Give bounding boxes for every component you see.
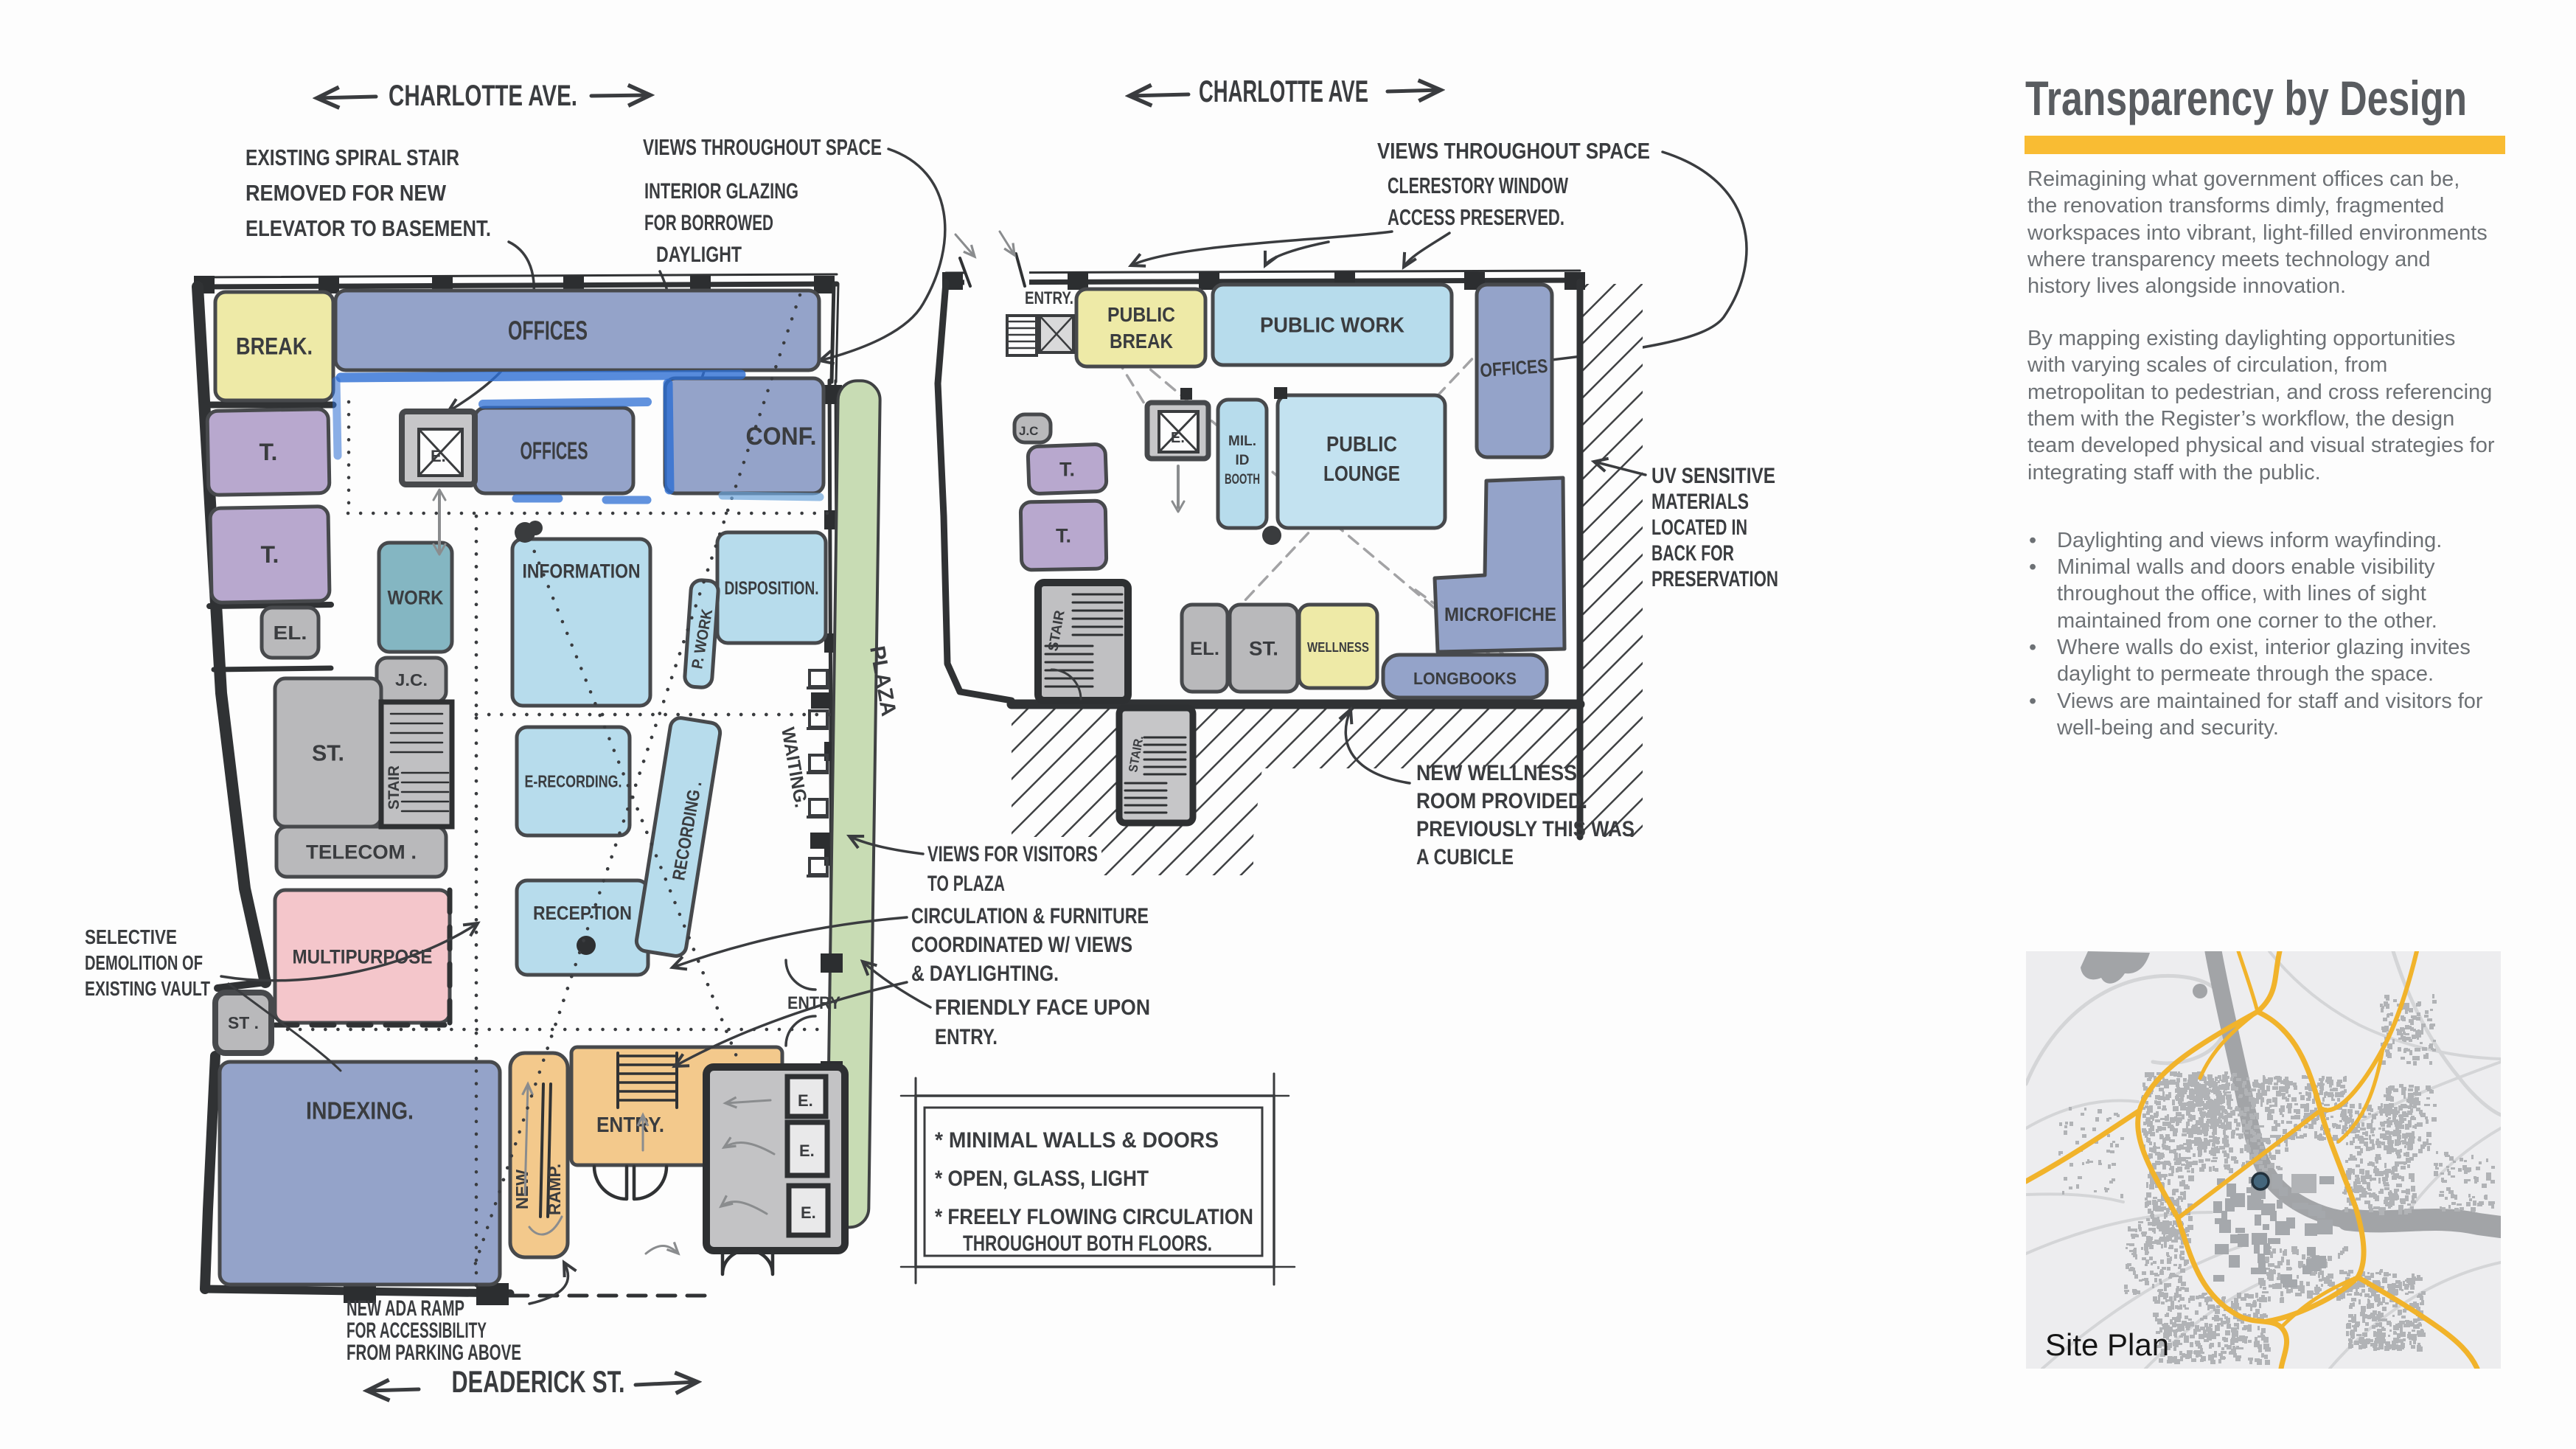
svg-text:Reimagining what government of: Reimagining what government offices can … xyxy=(2027,167,2460,191)
svg-text:history lives alongside innova: history lives alongside innovation. xyxy=(2027,274,2346,298)
svg-text:•: • xyxy=(2029,636,2036,659)
svg-text:E.: E. xyxy=(798,1091,813,1110)
svg-text:NEW ADA RAMP: NEW ADA RAMP xyxy=(347,1296,464,1321)
svg-text:EXISTING SPIRAL STAIR: EXISTING SPIRAL STAIR xyxy=(246,145,459,170)
svg-text:EL.: EL. xyxy=(274,622,307,644)
svg-text:NEW: NEW xyxy=(512,1170,532,1209)
svg-text:CIRCULATION & FURNITURE: CIRCULATION & FURNITURE xyxy=(911,904,1149,928)
svg-text:Daylighting and views inform w: Daylighting and views inform wayfinding. xyxy=(2057,529,2442,552)
svg-text:FRIENDLY FACE UPON: FRIENDLY FACE UPON xyxy=(935,995,1150,1020)
svg-text:Minimal walls and doors enable: Minimal walls and doors enable visibilit… xyxy=(2057,555,2435,579)
svg-text:T.: T. xyxy=(1056,524,1071,546)
svg-text:T.: T. xyxy=(1059,458,1075,480)
svg-text:OFFICES: OFFICES xyxy=(521,437,588,465)
svg-text:OFFICES: OFFICES xyxy=(1479,355,1548,381)
svg-text:VIEWS THROUGHOUT SPACE: VIEWS THROUGHOUT SPACE xyxy=(643,134,882,160)
svg-text:ROOM PROVIDED.: ROOM PROVIDED. xyxy=(1416,789,1587,813)
svg-text:E.: E. xyxy=(431,447,446,465)
svg-text:FOR BORROWED: FOR BORROWED xyxy=(644,211,773,235)
svg-text:PUBLIC: PUBLIC xyxy=(1326,433,1397,456)
svg-text:Site Plan: Site Plan xyxy=(2045,1327,2169,1362)
svg-text:LOUNGE: LOUNGE xyxy=(1323,462,1400,486)
svg-text:BOOTH: BOOTH xyxy=(1225,472,1260,487)
svg-text:E.: E. xyxy=(799,1142,815,1160)
svg-text:CHARLOTTE AVE: CHARLOTTE AVE xyxy=(1199,74,1368,108)
svg-text:BACK FOR: BACK FOR xyxy=(1651,541,1734,566)
svg-text:throughout the office, with li: throughout the office, with lines of sig… xyxy=(2057,582,2426,605)
svg-text:REMOVED FOR NEW: REMOVED FOR NEW xyxy=(246,180,447,206)
svg-text:maintained from one corner to: maintained from one corner to the other. xyxy=(2057,609,2437,633)
svg-text:LONGBOOKS: LONGBOOKS xyxy=(1413,669,1517,688)
svg-text:•: • xyxy=(2029,689,2036,713)
svg-text:BREAK: BREAK xyxy=(1110,330,1173,352)
svg-text:ID: ID xyxy=(1236,453,1250,468)
svg-text:* OPEN, GLASS, LIGHT: * OPEN, GLASS, LIGHT xyxy=(935,1167,1149,1191)
svg-text:J.C: J.C xyxy=(1019,424,1038,438)
svg-text:LOCATED IN: LOCATED IN xyxy=(1651,515,1747,540)
svg-text:CHARLOTTE AVE.: CHARLOTTE AVE. xyxy=(389,80,577,112)
svg-text:ACCESS PRESERVED.: ACCESS PRESERVED. xyxy=(1388,204,1564,230)
svg-text:•: • xyxy=(2029,529,2036,552)
svg-text:the renovation transforms diml: the renovation transforms dimly, fragmen… xyxy=(2027,194,2444,218)
svg-text:DISPOSITION.: DISPOSITION. xyxy=(725,578,819,599)
svg-text:RAMP.: RAMP. xyxy=(545,1164,564,1215)
svg-text:ELEVATOR TO BASEMENT.: ELEVATOR TO BASEMENT. xyxy=(246,215,491,241)
svg-text:A CUBICLE: A CUBICLE xyxy=(1416,845,1514,869)
svg-text:TO PLAZA: TO PLAZA xyxy=(927,872,1005,896)
svg-text:MICROFICHE: MICROFICHE xyxy=(1444,603,1556,625)
svg-text:E.: E. xyxy=(1171,430,1185,446)
svg-text:VIEWS FOR VISITORS: VIEWS FOR VISITORS xyxy=(927,842,1098,866)
svg-text:* FREELY FLOWING CIRCULATION: * FREELY FLOWING CIRCULATION xyxy=(935,1205,1253,1229)
svg-text:•: • xyxy=(2029,555,2036,579)
svg-text:SELECTIVE: SELECTIVE xyxy=(85,925,177,948)
svg-text:T.: T. xyxy=(261,541,279,568)
svg-text:NEW WELLNESS: NEW WELLNESS xyxy=(1416,761,1577,785)
svg-text:& DAYLIGHTING.: & DAYLIGHTING. xyxy=(911,962,1059,986)
svg-text:J.C.: J.C. xyxy=(395,670,428,689)
svg-text:ST .: ST . xyxy=(228,1013,259,1032)
svg-text:EXISTING VAULT: EXISTING VAULT xyxy=(85,977,210,1000)
svg-text:By mapping existing daylightin: By mapping existing daylighting opportun… xyxy=(2027,327,2455,350)
svg-text:INDEXING.: INDEXING. xyxy=(306,1097,414,1125)
svg-text:MATERIALS: MATERIALS xyxy=(1651,490,1749,514)
svg-text:RECEPTION: RECEPTION xyxy=(533,902,632,924)
svg-text:well-being and security.: well-being and security. xyxy=(2056,716,2279,740)
svg-text:STAIR: STAIR xyxy=(386,765,403,810)
svg-text:PRESERVATION: PRESERVATION xyxy=(1651,567,1778,591)
svg-text:* MINIMAL WALLS & DOORS: * MINIMAL WALLS & DOORS xyxy=(935,1128,1219,1153)
svg-text:E.: E. xyxy=(801,1203,816,1222)
svg-text:ST.: ST. xyxy=(1249,637,1278,659)
svg-text:ENTRY.: ENTRY. xyxy=(935,1025,998,1049)
svg-text:ENTRY: ENTRY xyxy=(787,993,840,1013)
svg-text:where transparency meets techn: where transparency meets technology and xyxy=(2027,248,2430,271)
svg-text:Where walls do exist, interior: Where walls do exist, interior glazing i… xyxy=(2057,636,2471,659)
svg-text:DEMOLITION OF: DEMOLITION OF xyxy=(85,951,203,974)
svg-text:FOR ACCESSIBILITY: FOR ACCESSIBILITY xyxy=(347,1318,487,1343)
svg-text:EL.: EL. xyxy=(1190,639,1219,659)
svg-text:with varying scales of circula: with varying scales of circulation, from xyxy=(2027,353,2387,377)
svg-text:OFFICES: OFFICES xyxy=(508,316,588,346)
svg-text:E-RECORDING.: E-RECORDING. xyxy=(525,772,622,791)
svg-text:CLERESTORY WINDOW: CLERESTORY WINDOW xyxy=(1388,173,1569,198)
svg-text:THROUGHOUT BOTH FLOORS.: THROUGHOUT BOTH FLOORS. xyxy=(963,1231,1212,1256)
svg-text:COORDINATED W/ VIEWS: COORDINATED W/ VIEWS xyxy=(911,933,1132,957)
svg-text:DAYLIGHT: DAYLIGHT xyxy=(656,243,742,267)
svg-text:team developed physical and vi: team developed physical and visual strat… xyxy=(2027,434,2495,457)
svg-text:INTERIOR GLAZING: INTERIOR GLAZING xyxy=(644,179,798,204)
svg-text:VIEWS THROUGHOUT SPACE: VIEWS THROUGHOUT SPACE xyxy=(1377,138,1650,164)
svg-text:TELECOM .: TELECOM . xyxy=(306,841,417,863)
svg-text:daylight to permeate through t: daylight to permeate through the space. xyxy=(2057,662,2434,686)
svg-text:integrating staff with the pub: integrating staff with the public. xyxy=(2027,461,2321,484)
svg-text:WELLNESS: WELLNESS xyxy=(1307,640,1369,655)
svg-text:DEADERICK ST.: DEADERICK ST. xyxy=(452,1364,625,1399)
svg-text:them with the Register’s workf: them with the Register’s workflow, the d… xyxy=(2027,407,2454,431)
svg-text:ENTRY.: ENTRY. xyxy=(596,1113,664,1137)
svg-text:WORK: WORK xyxy=(388,586,444,608)
svg-text:PUBLIC: PUBLIC xyxy=(1107,303,1175,326)
svg-text:BREAK.: BREAK. xyxy=(236,333,313,360)
svg-text:Views are maintained for staff: Views are maintained for staff and visit… xyxy=(2057,689,2483,713)
svg-text:UV SENSITIVE: UV SENSITIVE xyxy=(1651,464,1775,488)
svg-text:MIL.: MIL. xyxy=(1228,434,1256,449)
svg-text:FROM PARKING ABOVE: FROM PARKING ABOVE xyxy=(347,1341,521,1365)
svg-text:metropolitan to pedestrian, an: metropolitan to pedestrian, and cross re… xyxy=(2027,381,2492,404)
svg-text:PUBLIC WORK: PUBLIC WORK xyxy=(1260,314,1404,338)
svg-text:ST.: ST. xyxy=(312,740,344,765)
svg-text:Transparency by Design: Transparency by Design xyxy=(2025,71,2467,125)
svg-text:PREVIOUSLY THIS WAS: PREVIOUSLY THIS WAS xyxy=(1416,817,1635,841)
svg-text:ENTRY.: ENTRY. xyxy=(1025,288,1073,308)
svg-text:T.: T. xyxy=(260,439,278,465)
svg-text:workspaces into vibrant, light: workspaces into vibrant, light-filled en… xyxy=(2027,221,2488,245)
